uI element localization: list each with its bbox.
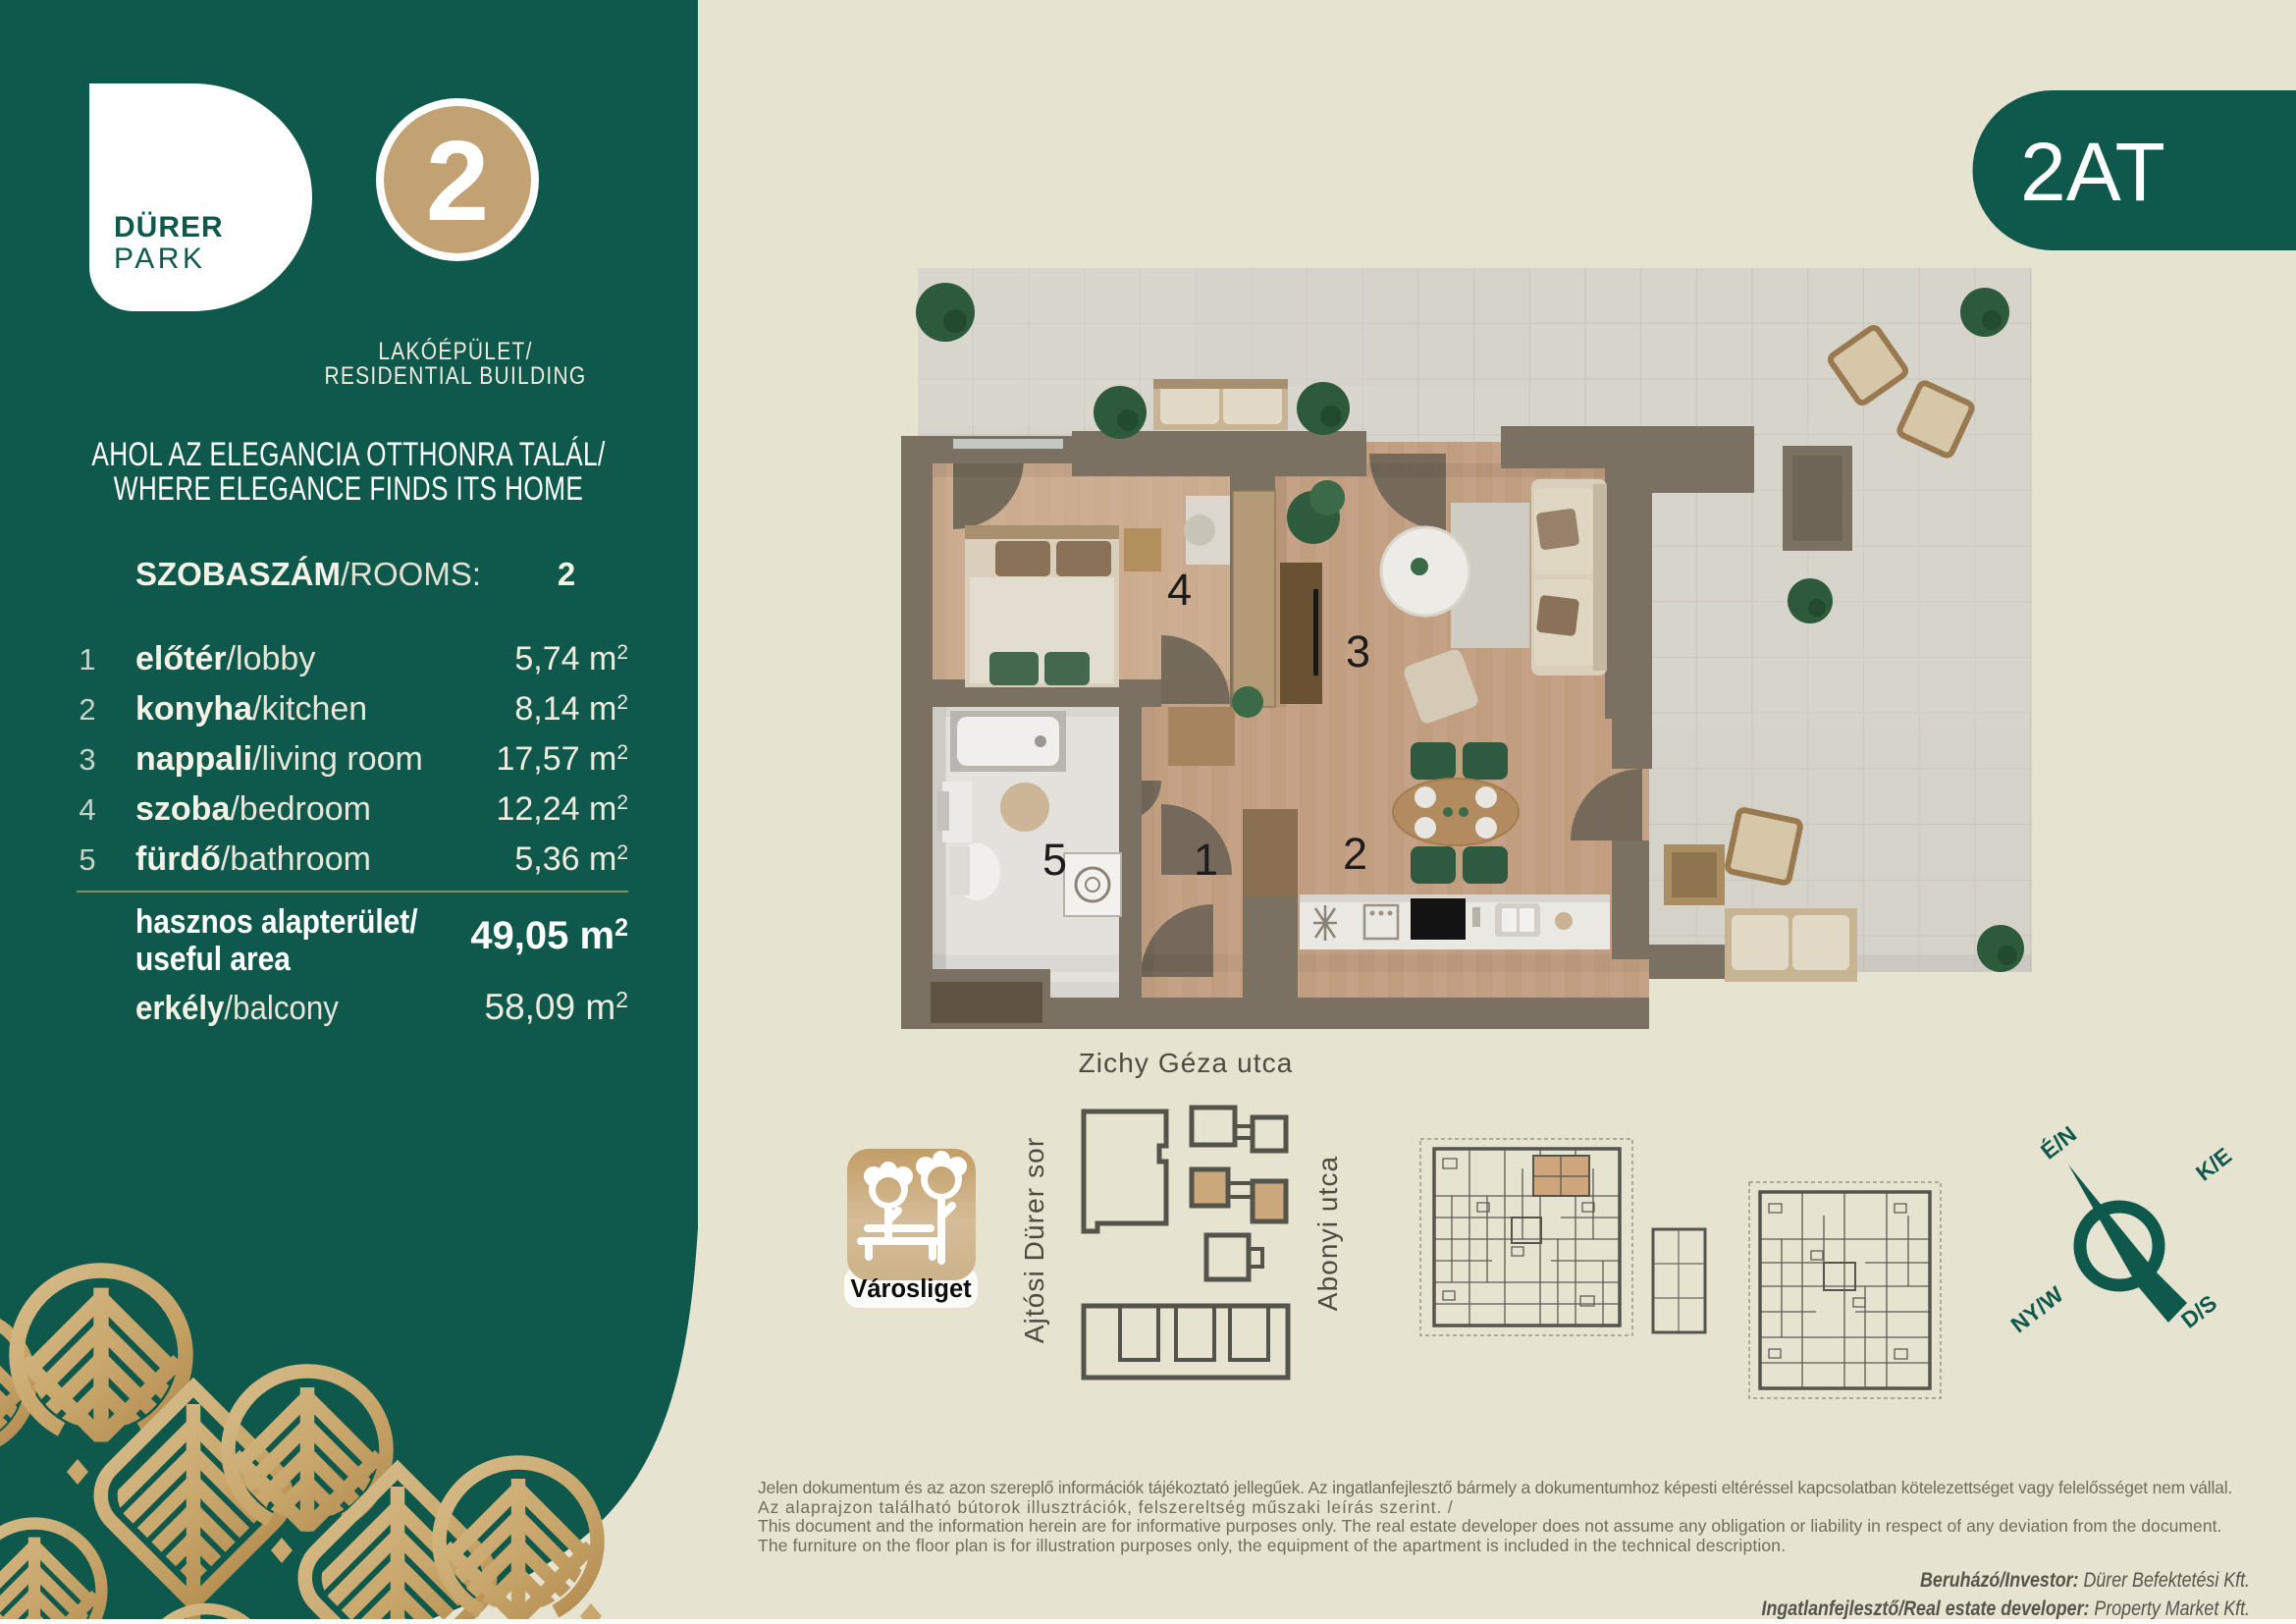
svg-text:58,09 m2: 58,09 m2 xyxy=(485,987,629,1027)
svg-text:Jelen dokumentum és az azon sz: Jelen dokumentum és az azon szereplő inf… xyxy=(758,1478,2232,1497)
svg-text:12,24 m2: 12,24 m2 xyxy=(496,790,628,828)
svg-text:Ingatlanfejlesztő/Real estate: Ingatlanfejlesztő/Real estate developer:… xyxy=(1762,1597,2250,1621)
svg-text:This document and the informat: This document and the information herein… xyxy=(758,1516,2221,1536)
svg-text:3: 3 xyxy=(79,742,95,777)
svg-text:5: 5 xyxy=(1042,835,1067,885)
svg-text:Ajtósi Dürer sor: Ajtósi Dürer sor xyxy=(1019,1137,1049,1344)
svg-text:erkély/balcony: erkély/balcony xyxy=(135,989,340,1027)
svg-text:AHOL AZ ELEGANCIA OTTHONRA TAL: AHOL AZ ELEGANCIA OTTHONRA TALÁL/ xyxy=(91,434,605,472)
svg-text:nappali/living room: nappali/living room xyxy=(135,740,423,778)
svg-text:The furniture on the floor pla: The furniture on the floor plan is for i… xyxy=(758,1536,1786,1555)
svg-text:Beruházó/Investor: Dürer Befek: Beruházó/Investor: Dürer Befektetési Kft… xyxy=(1920,1569,2250,1593)
svg-text:RESIDENTIAL BUILDING: RESIDENTIAL BUILDING xyxy=(324,361,586,389)
svg-text:5,74 m2: 5,74 m2 xyxy=(514,640,628,677)
svg-text:Az alaprajzon található bútoro: Az alaprajzon található bútorok illusztr… xyxy=(758,1497,1454,1517)
svg-text:WHERE ELEGANCE FINDS ITS HOME: WHERE ELEGANCE FINDS ITS HOME xyxy=(114,470,583,508)
svg-text:hasznos alapterület/: hasznos alapterület/ xyxy=(135,902,418,940)
svg-text:konyha/kitchen: konyha/kitchen xyxy=(135,690,367,728)
svg-text:Abonyi utca: Abonyi utca xyxy=(1312,1156,1343,1311)
svg-text:3: 3 xyxy=(1346,626,1370,677)
svg-text:előtér/lobby: előtér/lobby xyxy=(135,640,315,677)
svg-text:2AT: 2AT xyxy=(2020,126,2165,218)
svg-text:4: 4 xyxy=(79,792,95,827)
svg-text:2: 2 xyxy=(558,556,575,592)
svg-text:DÜRER: DÜRER xyxy=(114,211,224,244)
svg-text:2: 2 xyxy=(79,692,95,727)
svg-text:1: 1 xyxy=(1194,835,1218,885)
svg-text:5,36 m2: 5,36 m2 xyxy=(514,840,628,878)
svg-text:49,05 m2: 49,05 m2 xyxy=(470,914,628,957)
svg-text:LAKÓÉPÜLET/: LAKÓÉPÜLET/ xyxy=(378,337,532,364)
svg-text:2: 2 xyxy=(1343,829,1367,879)
svg-text:17,57 m2: 17,57 m2 xyxy=(496,740,628,778)
svg-text:1: 1 xyxy=(79,642,95,677)
svg-text:SZOBASZÁM/ROOMS:: SZOBASZÁM/ROOMS: xyxy=(135,556,481,592)
svg-text:4: 4 xyxy=(1167,565,1192,615)
svg-text:fürdő/bathroom: fürdő/bathroom xyxy=(135,840,371,878)
svg-text:PARK: PARK xyxy=(114,243,205,275)
svg-text:Városliget: Városliget xyxy=(850,1275,972,1303)
svg-text:2: 2 xyxy=(426,117,490,244)
svg-text:5: 5 xyxy=(79,842,95,877)
svg-text:Zichy Géza utca: Zichy Géza utca xyxy=(1079,1048,1294,1078)
svg-text:szoba/bedroom: szoba/bedroom xyxy=(135,790,371,828)
svg-text:useful area: useful area xyxy=(135,940,292,977)
svg-text:8,14 m2: 8,14 m2 xyxy=(514,690,628,728)
